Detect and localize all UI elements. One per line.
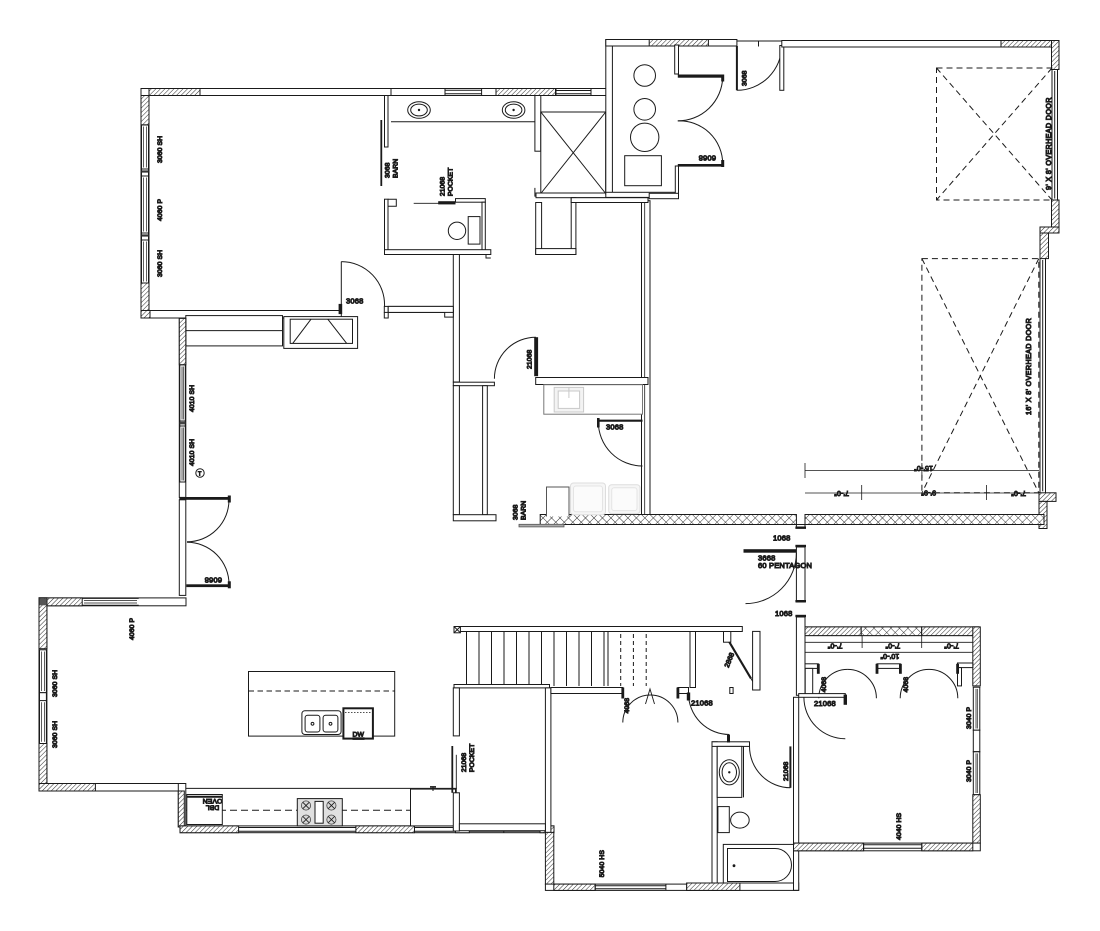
svg-text:6068: 6068 <box>205 576 223 585</box>
svg-text:60 PENTAGON: 60 PENTAGON <box>758 561 812 570</box>
svg-text:3068: 3068 <box>513 504 520 520</box>
svg-text:BARN: BARN <box>521 501 528 520</box>
svg-text:POCKET: POCKET <box>469 744 476 773</box>
svg-text:BARN: BARN <box>393 159 400 178</box>
svg-text:15'-0": 15'-0" <box>914 464 933 471</box>
svg-text:1068: 1068 <box>773 534 791 543</box>
svg-text:3068: 3068 <box>606 423 624 432</box>
svg-text:3040 P: 3040 P <box>966 759 973 782</box>
svg-text:7'-0": 7'-0" <box>834 489 849 496</box>
svg-text:4068: 4068 <box>821 677 828 693</box>
svg-text:3040 P: 3040 P <box>966 706 973 729</box>
svg-text:DBL: DBL <box>206 804 220 811</box>
svg-text:OVEN: OVEN <box>203 797 223 804</box>
svg-text:7'-0": 7'-0" <box>1011 489 1026 496</box>
svg-text:4060 P: 4060 P <box>129 617 136 640</box>
svg-text:21068: 21068 <box>691 699 713 708</box>
svg-text:5040 HS: 5040 HS <box>599 850 606 878</box>
svg-text:7'-0": 7'-0" <box>827 642 842 649</box>
svg-text:4068: 4068 <box>624 698 631 714</box>
svg-text:1068: 1068 <box>775 609 793 618</box>
svg-text:10'-0": 10'-0" <box>880 652 899 659</box>
svg-text:4010 SH: 4010 SH <box>189 385 196 412</box>
svg-text:POCKET: POCKET <box>448 168 455 197</box>
svg-text:4060 P: 4060 P <box>157 198 164 221</box>
svg-text:9'-9": 9'-9" <box>921 489 936 496</box>
svg-text:4068: 4068 <box>903 677 910 693</box>
svg-text:3060 SH: 3060 SH <box>52 721 59 748</box>
svg-text:3060 SH: 3060 SH <box>157 250 164 277</box>
svg-text:21068: 21068 <box>814 699 836 708</box>
svg-text:9' X 8' OVERHEAD DOOR: 9' X 8' OVERHEAD DOOR <box>1044 97 1053 190</box>
svg-text:3060 SH: 3060 SH <box>52 670 59 697</box>
svg-text:3068: 3068 <box>742 70 749 86</box>
svg-text:3068: 3068 <box>346 297 364 306</box>
svg-text:3060 SH: 3060 SH <box>157 136 164 163</box>
svg-text:4040 HS: 4040 HS <box>896 812 903 840</box>
svg-text:4010 SH: 4010 SH <box>189 439 196 466</box>
svg-text:6068: 6068 <box>699 154 717 163</box>
svg-text:21068: 21068 <box>783 761 790 781</box>
svg-text:21068: 21068 <box>440 177 447 197</box>
svg-text:21068: 21068 <box>461 753 468 773</box>
svg-text:3068: 3068 <box>385 162 392 178</box>
svg-text:7'-0": 7'-0" <box>885 642 900 649</box>
svg-text:21068: 21068 <box>527 349 534 369</box>
svg-text:16' X 8' OVERHEAD DOOR: 16' X 8' OVERHEAD DOOR <box>1024 318 1033 415</box>
svg-text:7'-0": 7'-0" <box>944 642 959 649</box>
